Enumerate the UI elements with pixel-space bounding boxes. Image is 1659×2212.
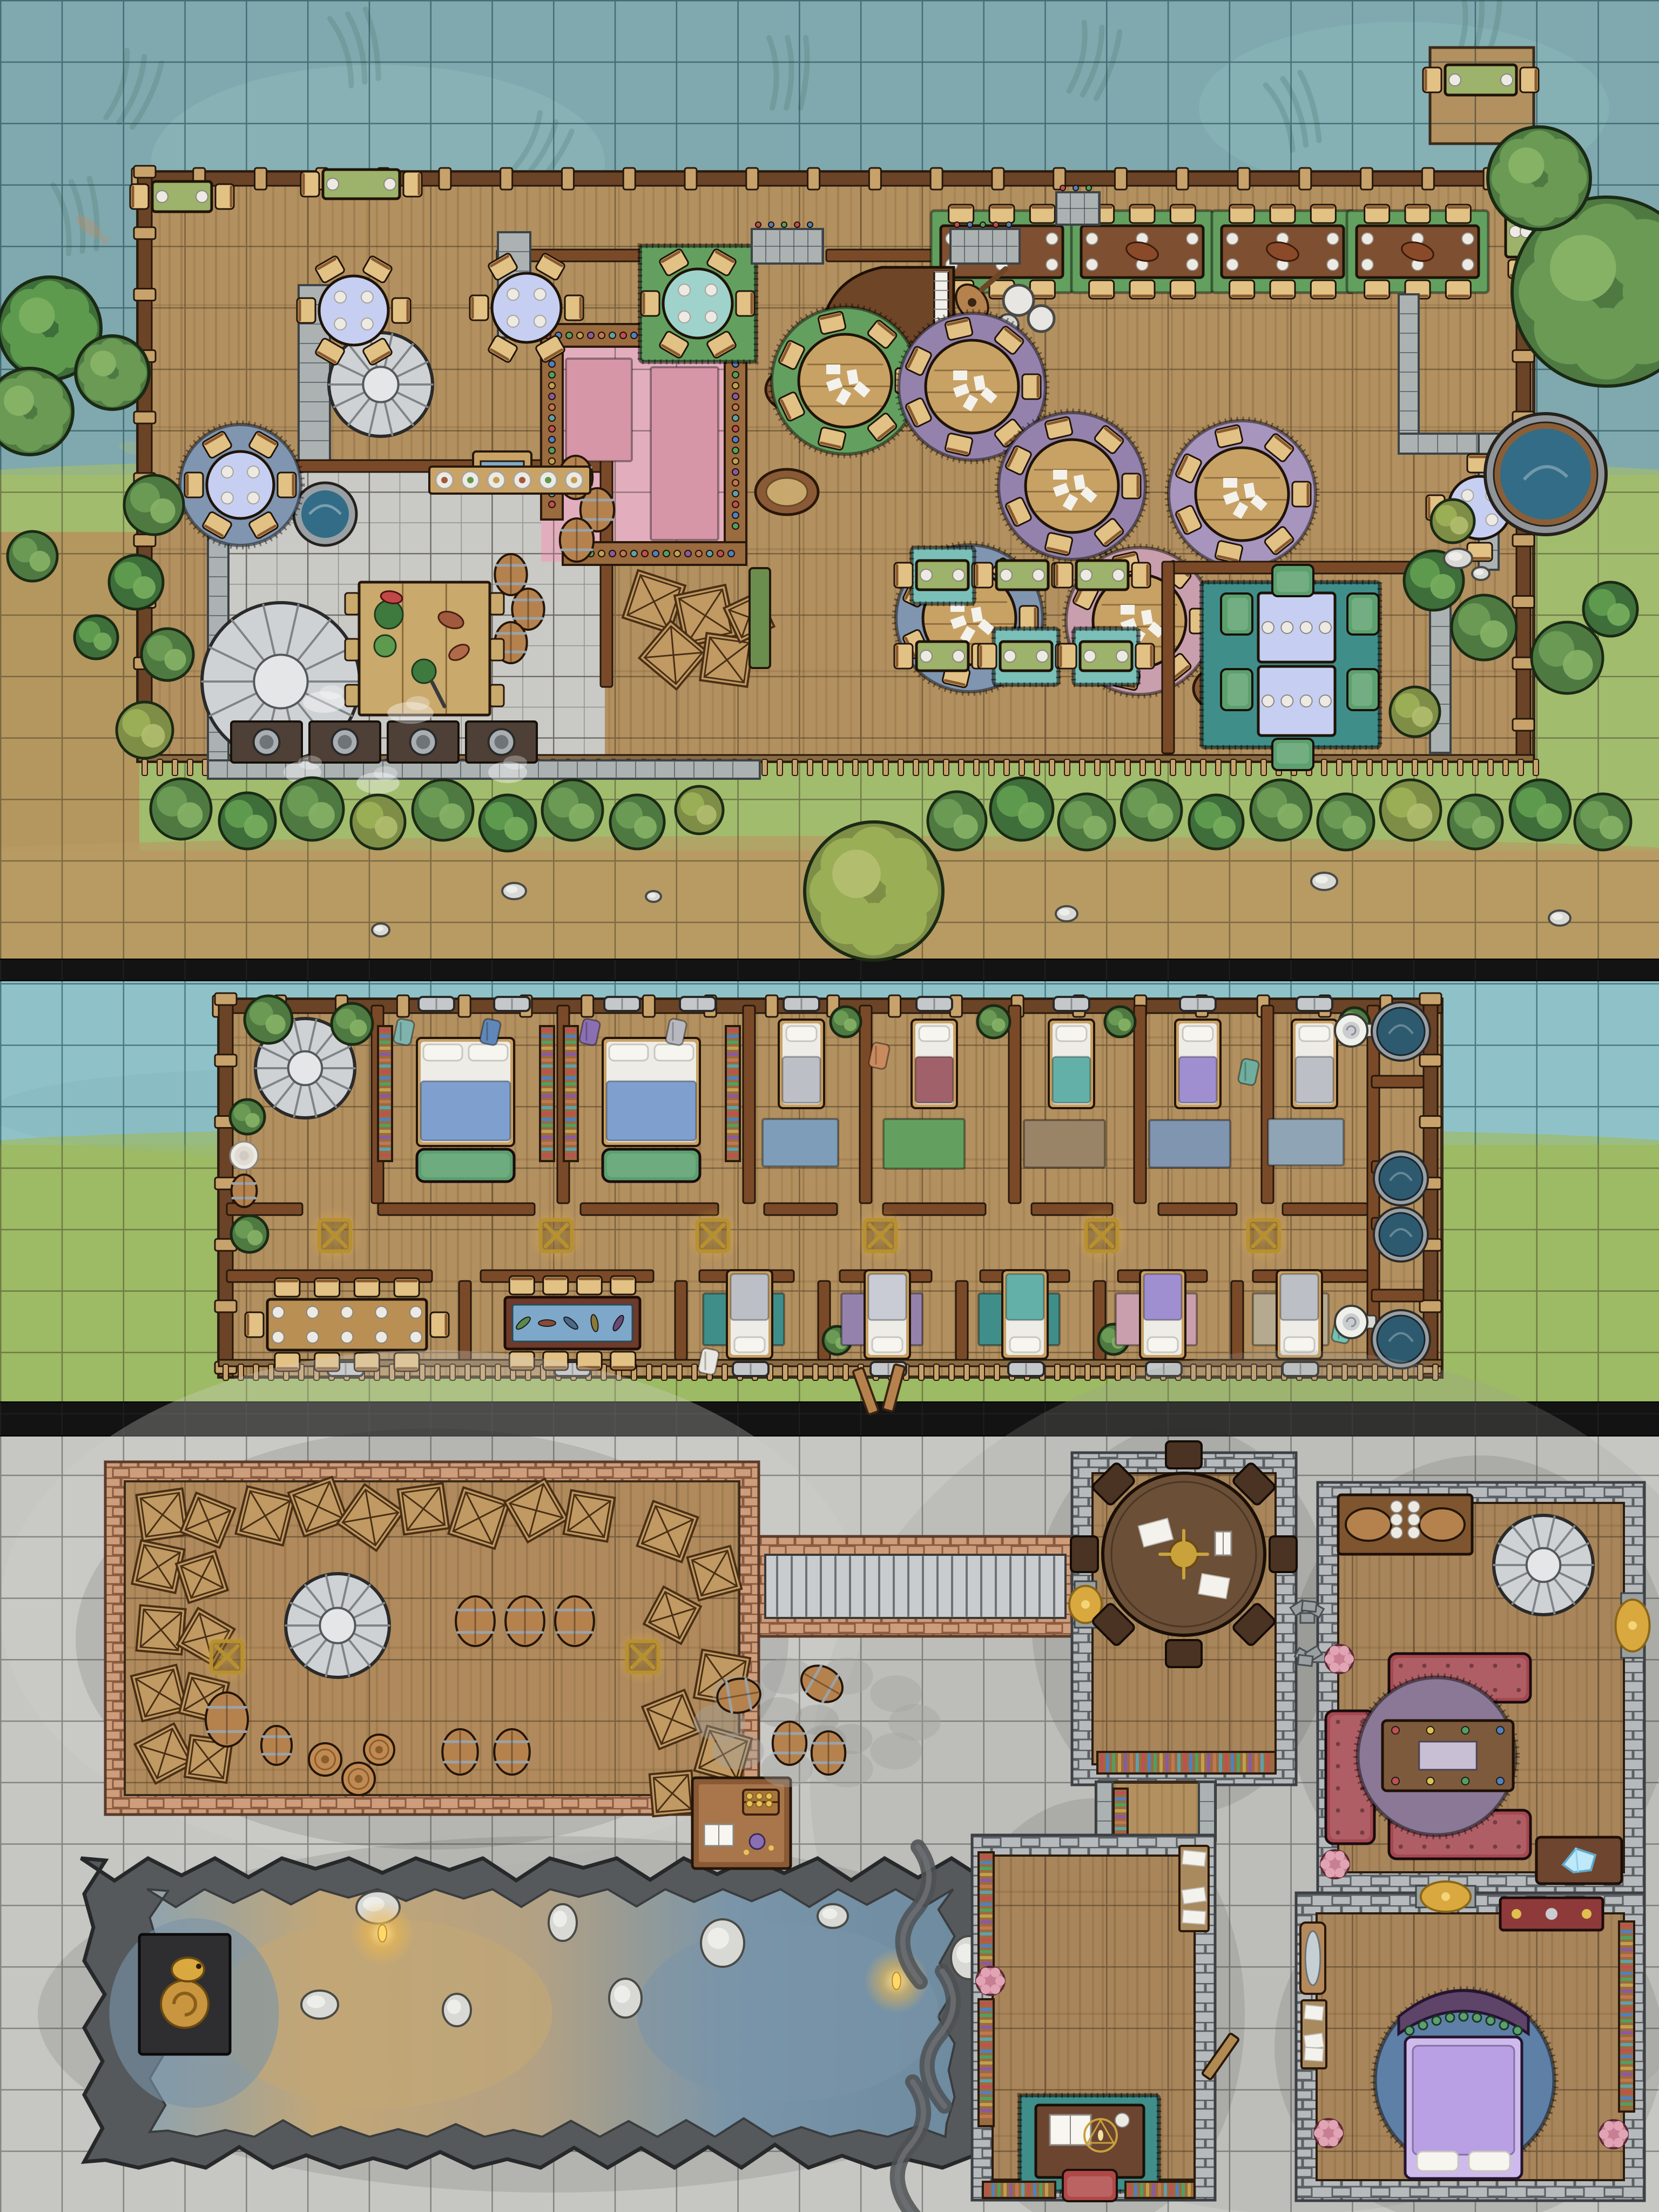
game-table [1382,1721,1513,1791]
barrel [442,1729,478,1775]
shelf [378,1026,392,1161]
xtable [1347,205,1488,299]
crate [136,1605,185,1654]
barrel [261,1726,292,1765]
beam [860,1006,872,1203]
shelf [1619,1921,1634,2112]
planter [750,568,770,668]
beam [956,1281,968,1360]
bed [1292,1020,1337,1108]
mirror [1300,1923,1325,1994]
bed [912,1020,957,1108]
beam [1134,1006,1146,1203]
xtable [130,181,234,212]
armchair [1063,2170,1117,2201]
sofa [603,1149,700,1182]
sofa [417,1149,514,1182]
tavern-ground-floor [0,0,1659,960]
crate [700,633,753,686]
shelf [979,1852,994,1974]
tree [76,336,149,409]
wbed [603,1038,700,1146]
hot-tub [1485,414,1606,535]
stone [1096,1782,1112,1840]
serving-counter [429,467,590,494]
crate [398,1483,449,1535]
armchair [1221,669,1252,710]
barrel [232,1175,257,1207]
bed [779,1020,824,1108]
shelf [1097,1752,1276,1773]
bed [727,1270,772,1359]
beam [459,1281,471,1360]
rug [1149,1120,1230,1168]
barrel [560,518,594,562]
grid [0,999,219,1145]
canopy-bed [1399,1991,1528,2179]
tub [1374,1208,1428,1262]
xtable [301,170,422,199]
bed [1140,1270,1185,1359]
beam [1283,1203,1367,1215]
armchair [1272,739,1313,770]
xtable [1212,205,1353,299]
armchair [1347,594,1379,635]
xtable [1258,666,1335,736]
xtable [1423,65,1539,95]
rug [566,359,632,461]
rtable [1166,419,1318,570]
barrel [555,1596,594,1646]
barrel [456,1596,495,1646]
buffet [1338,1495,1472,1554]
beam [1231,1281,1243,1360]
beam [1262,1006,1273,1203]
shelf [983,2182,1055,2198]
shelf [540,1026,554,1161]
rug [1024,1120,1105,1168]
barrels [232,1175,257,1207]
hearth [950,222,1020,264]
ritual-table [1036,2105,1144,2177]
armchair [1347,594,1379,635]
goldwall [1616,1593,1650,1658]
beam [826,249,948,261]
beam [1372,1076,1424,1088]
beam [883,1203,986,1215]
battle-map-canvas [0,0,1659,2212]
tree [805,822,943,960]
armchair [1221,669,1252,710]
kitchen-prep-table [345,582,504,715]
goldwall [1416,1881,1475,1912]
armchair [1272,565,1313,596]
pinboard [1301,2000,1326,2068]
armchair [1063,2170,1117,2201]
bed [1002,1270,1048,1359]
bed [1277,1270,1322,1359]
rtable [178,422,303,548]
barrel [812,1731,845,1775]
beam [1158,1203,1237,1215]
tree [1488,127,1590,230]
wbed [417,1038,514,1146]
shelf [979,1999,994,2126]
beam [378,1203,535,1215]
treasure-desk [692,1778,791,1869]
bed [865,1270,910,1359]
bed [1175,1020,1220,1108]
floor-divider [0,959,1659,981]
tub [1374,1151,1428,1205]
stone [1399,294,1419,454]
tub [1372,1002,1430,1061]
barrel [494,1729,530,1775]
grid [0,1145,219,1401]
shelf [726,1026,740,1161]
grid [1442,999,1659,1145]
shelf [725,347,746,542]
lounge-spiral-staircase [1494,1515,1593,1615]
barrel [206,1692,248,1746]
battle-map-page [0,0,1659,2212]
xtable [1258,593,1335,662]
beam [743,1006,755,1203]
armchair [1221,594,1252,635]
shelf [564,1026,578,1161]
rug [1268,1119,1344,1165]
shelf [1125,2182,1195,2198]
basement-stairs [759,1536,1072,1636]
bed [1049,1020,1094,1108]
library-round-table [1071,1441,1297,1667]
barrel [505,1596,544,1646]
beam [1009,1006,1021,1203]
rtable [996,410,1148,562]
grid [1442,1145,1659,1401]
crate [564,1491,615,1542]
armchair [1272,739,1313,770]
basement-floor [0,1350,1659,2212]
rug [651,367,718,540]
crate [235,1486,294,1545]
armchair [1347,669,1379,710]
tree [0,368,73,455]
pinboard [1179,1846,1209,1931]
xtable [894,642,990,671]
guest-rooms-floor [0,981,1659,1415]
beam [1372,1290,1424,1301]
crate [650,1771,696,1817]
armchair [1347,669,1379,710]
armchair [1272,565,1313,596]
rug [763,1119,838,1166]
beam [764,1203,837,1215]
stone [1199,1782,1215,1840]
grid [0,0,1659,172]
wallH [213,995,1442,1017]
pstack [230,1142,258,1170]
barrel [773,1722,806,1765]
golden-creature-slab [139,1934,230,2054]
rug [884,1119,965,1169]
console [1500,1898,1603,1930]
cellar-spiral-staircase [286,1574,389,1677]
crystal-mat [1536,1837,1622,1884]
beam [1162,562,1174,753]
armchair [1221,594,1252,635]
hearth [752,222,823,264]
xtable [1054,561,1150,590]
xtable [1058,642,1154,671]
beam [675,1281,687,1360]
